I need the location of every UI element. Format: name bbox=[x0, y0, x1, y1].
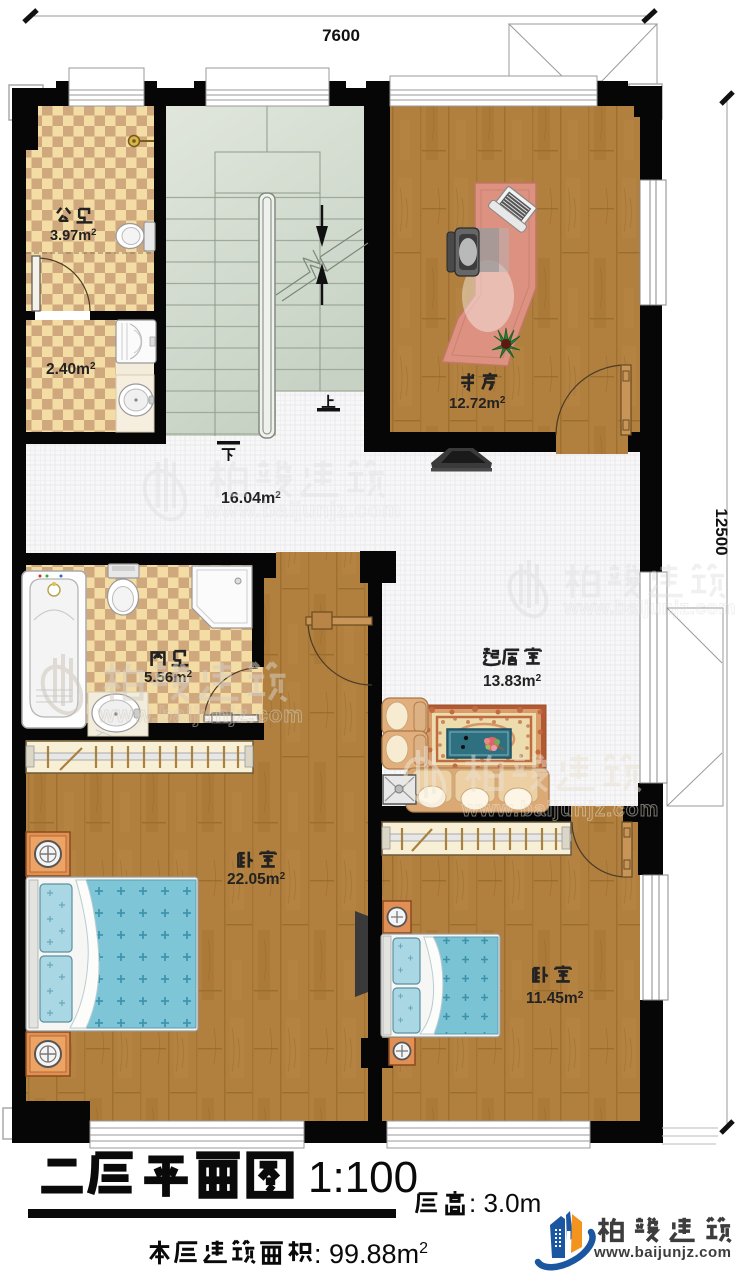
svg-text:13.83m2: 13.83m2 bbox=[483, 673, 542, 690]
svg-text:: 3.0m: : 3.0m bbox=[469, 1188, 541, 1218]
svg-text:www.baijunjz.com: www.baijunjz.com bbox=[461, 798, 659, 821]
svg-text:www.baijunjz.com: www.baijunjz.com bbox=[97, 702, 304, 727]
svg-text:1:100: 1:100 bbox=[308, 1153, 418, 1202]
svg-text:: 99.88m2: : 99.88m2 bbox=[314, 1239, 428, 1269]
svg-text:3.97m2: 3.97m2 bbox=[50, 227, 96, 244]
svg-text:2.40m2: 2.40m2 bbox=[46, 361, 96, 378]
svg-text:11.45m2: 11.45m2 bbox=[526, 990, 584, 1007]
svg-text:12500: 12500 bbox=[712, 508, 731, 555]
svg-text:12.72m2: 12.72m2 bbox=[449, 395, 506, 412]
svg-text:22.05m2: 22.05m2 bbox=[227, 871, 286, 888]
svg-text:www.baijunjz.com: www.baijunjz.com bbox=[203, 499, 401, 522]
svg-text:7600: 7600 bbox=[322, 26, 360, 45]
svg-text:www.baijunjz.com: www.baijunjz.com bbox=[563, 598, 736, 619]
svg-text:www.baijunjz.com: www.baijunjz.com bbox=[593, 1244, 731, 1261]
